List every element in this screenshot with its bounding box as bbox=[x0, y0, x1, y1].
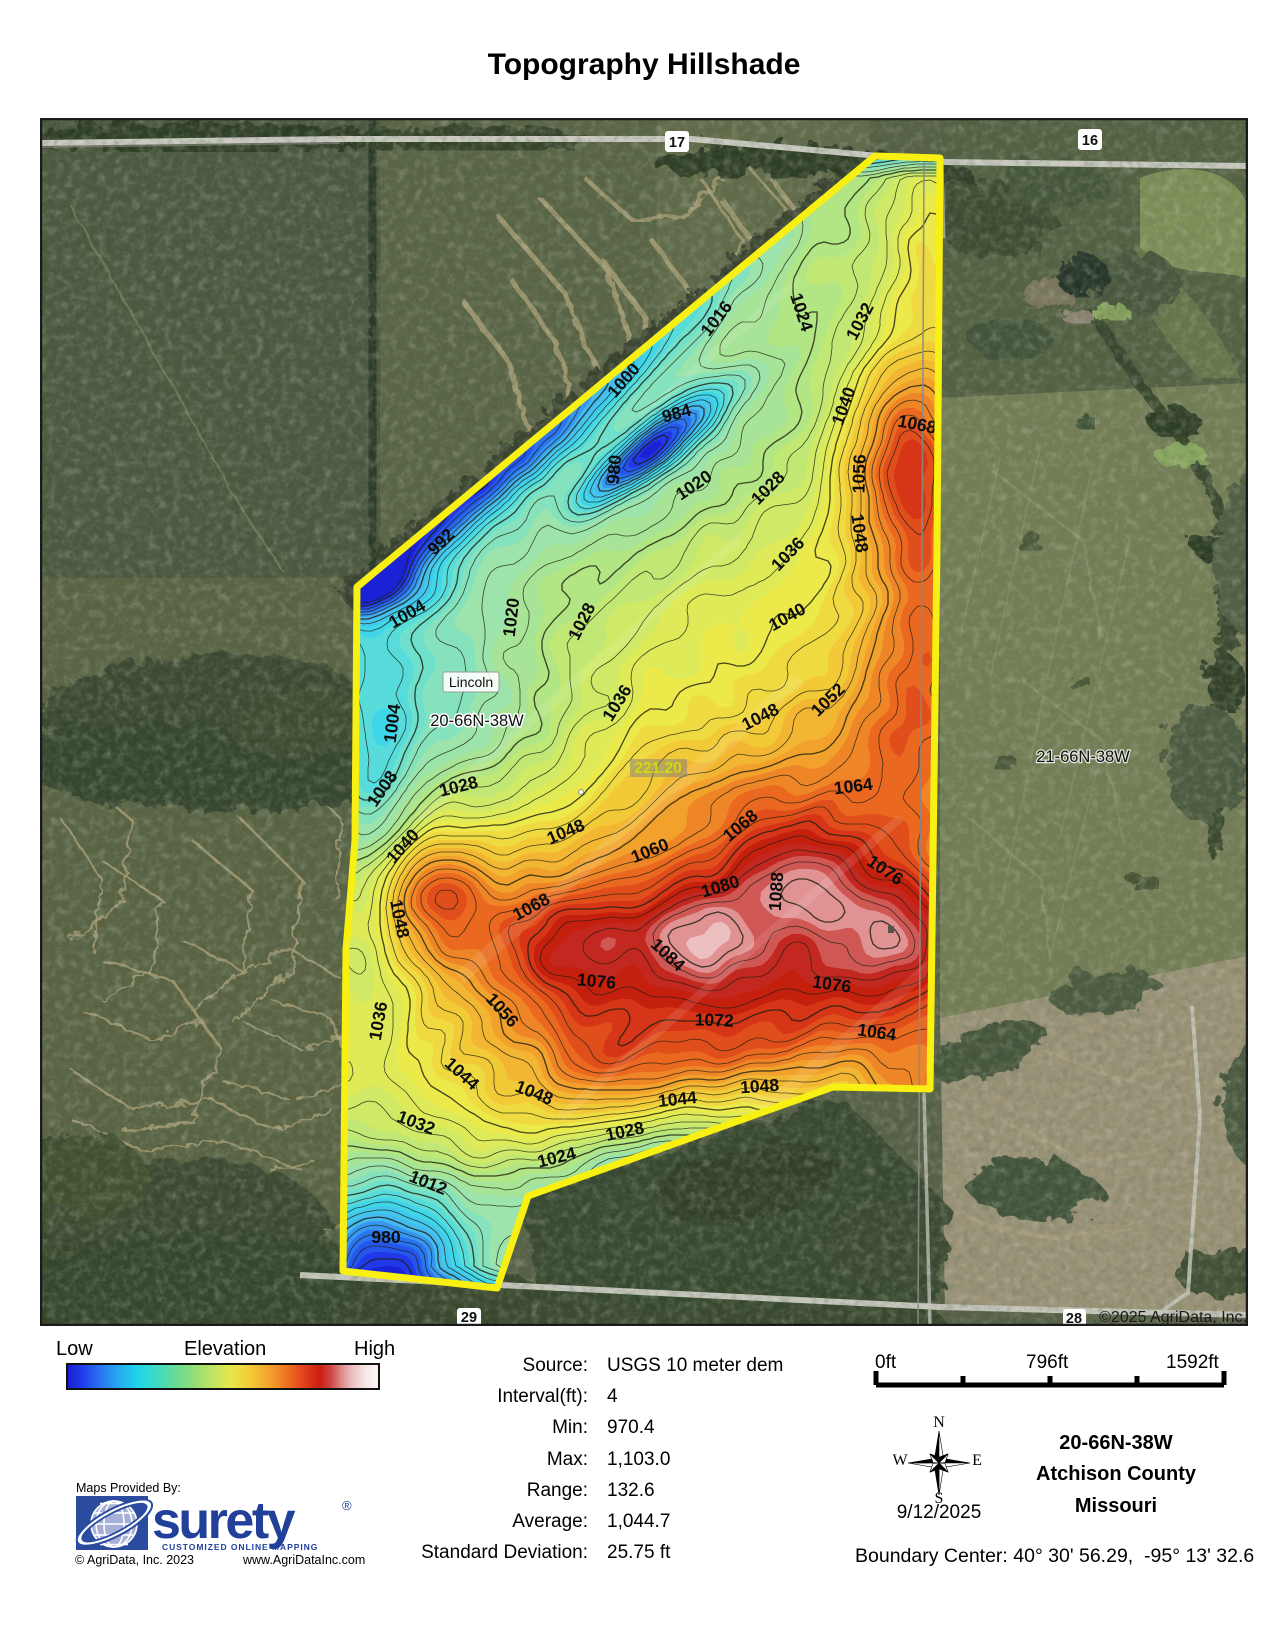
svg-text:W: W bbox=[892, 1452, 908, 1469]
svg-text:980: 980 bbox=[371, 1227, 400, 1247]
svg-text:1044: 1044 bbox=[657, 1087, 698, 1111]
svg-text:29: 29 bbox=[461, 1310, 477, 1326]
svg-text:1072: 1072 bbox=[694, 1009, 734, 1030]
svg-text:17: 17 bbox=[669, 135, 685, 151]
svg-text:1056: 1056 bbox=[848, 454, 869, 494]
svg-text:1088: 1088 bbox=[765, 871, 788, 911]
svg-text:980: 980 bbox=[603, 454, 625, 485]
svg-text:1076: 1076 bbox=[576, 969, 617, 992]
svg-text:16: 16 bbox=[1082, 133, 1098, 149]
svg-text:E: E bbox=[972, 1452, 982, 1469]
svg-text:Lincoln: Lincoln bbox=[449, 674, 493, 690]
svg-text:221.20: 221.20 bbox=[634, 760, 681, 777]
svg-text:20-66N-38W: 20-66N-38W bbox=[430, 712, 524, 730]
svg-text:21-66N-38W: 21-66N-38W bbox=[1036, 748, 1130, 766]
svg-text:N: N bbox=[933, 1414, 945, 1431]
svg-text:©2025 AgriData, Inc.: ©2025 AgriData, Inc. bbox=[1099, 1309, 1247, 1326]
svg-text:1048: 1048 bbox=[739, 1075, 779, 1098]
svg-text:®: ® bbox=[342, 1498, 352, 1513]
svg-text:CUSTOMIZED ONLINE MAPPING: CUSTOMIZED ONLINE MAPPING bbox=[162, 1542, 318, 1552]
